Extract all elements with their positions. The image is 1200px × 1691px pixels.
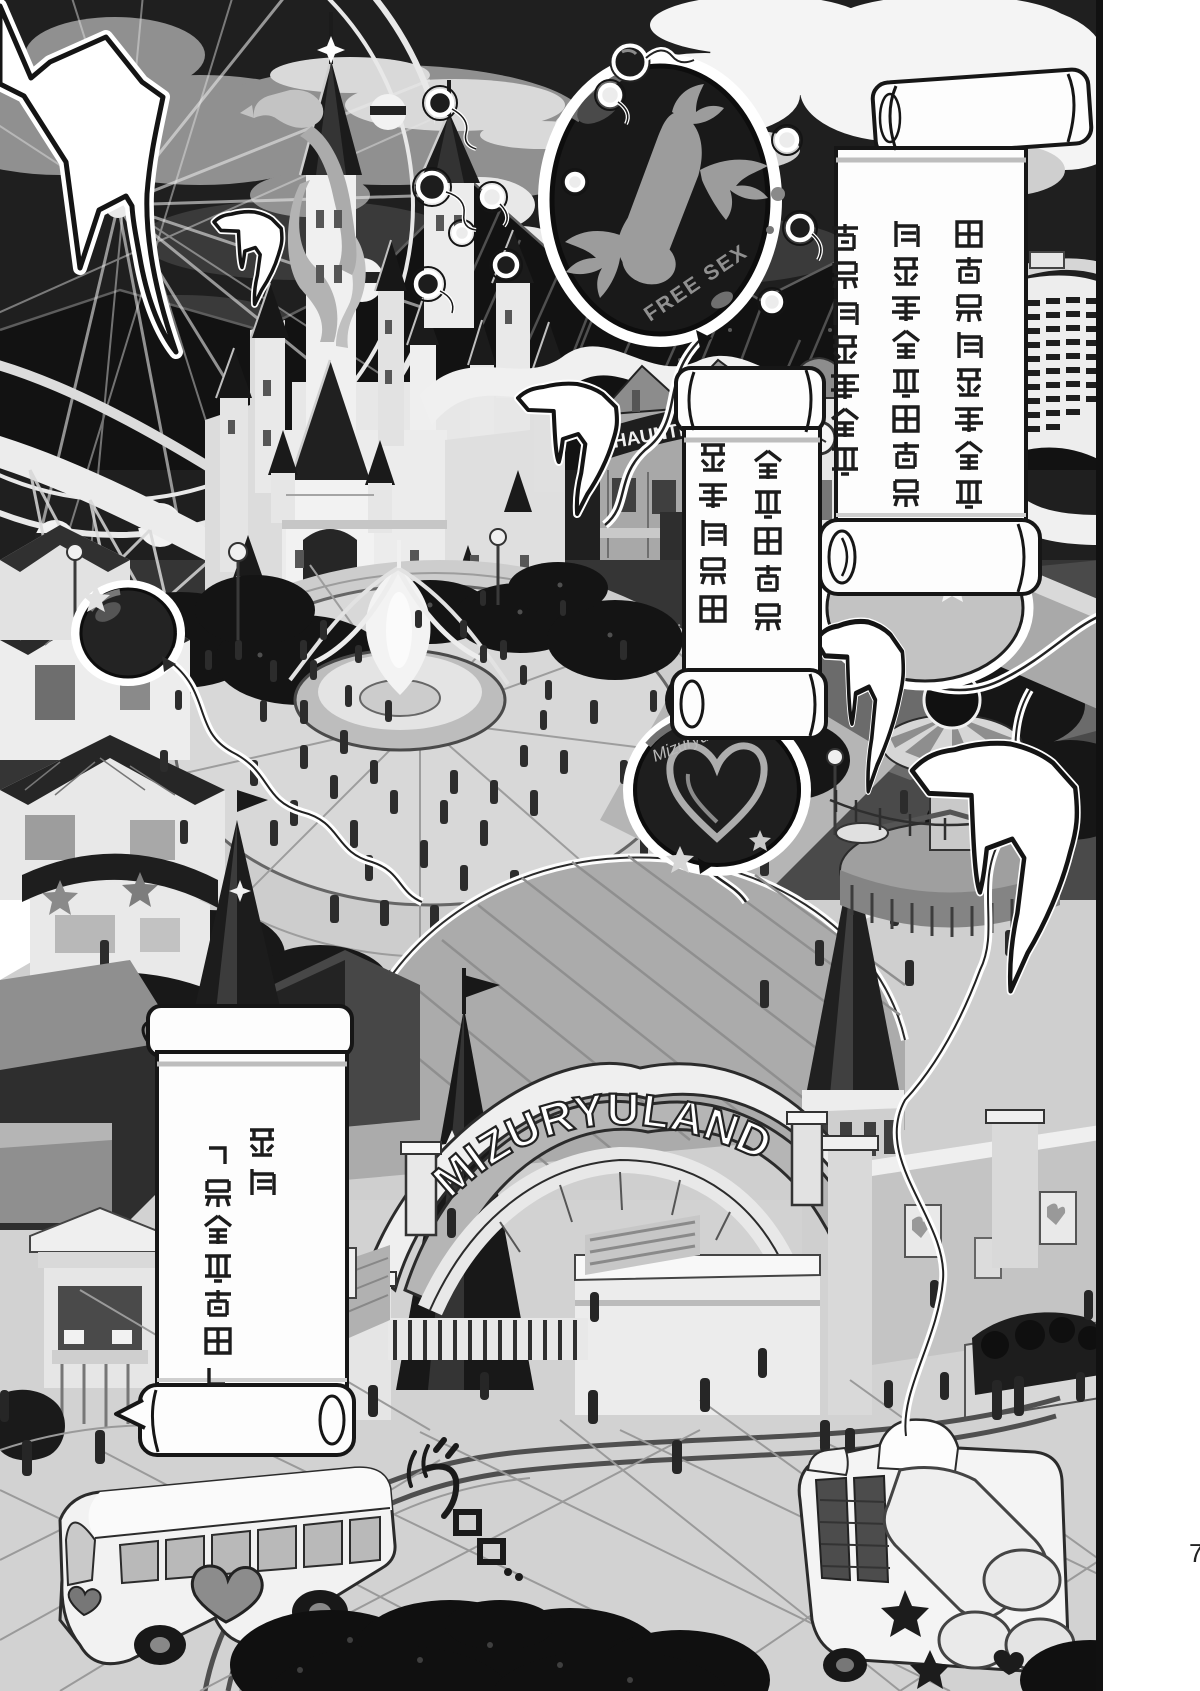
svg-text:7: 7 (1189, 1538, 1200, 1568)
